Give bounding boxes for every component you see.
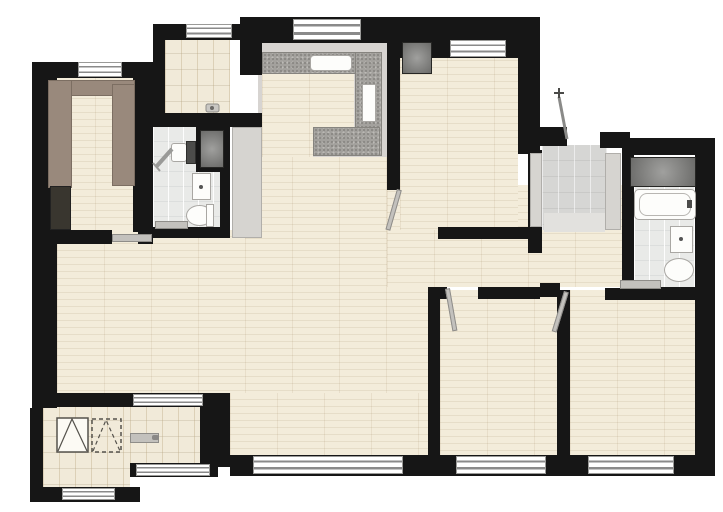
shower-bar-icon — [153, 149, 172, 171]
floor-drain-icon — [206, 104, 219, 112]
entry-door-swing-icon — [554, 88, 567, 139]
floor-plan — [0, 0, 723, 512]
appliance-dashed-icon — [92, 419, 121, 452]
washing-machine-icon — [57, 418, 88, 452]
symbols-overlay — [0, 0, 723, 512]
